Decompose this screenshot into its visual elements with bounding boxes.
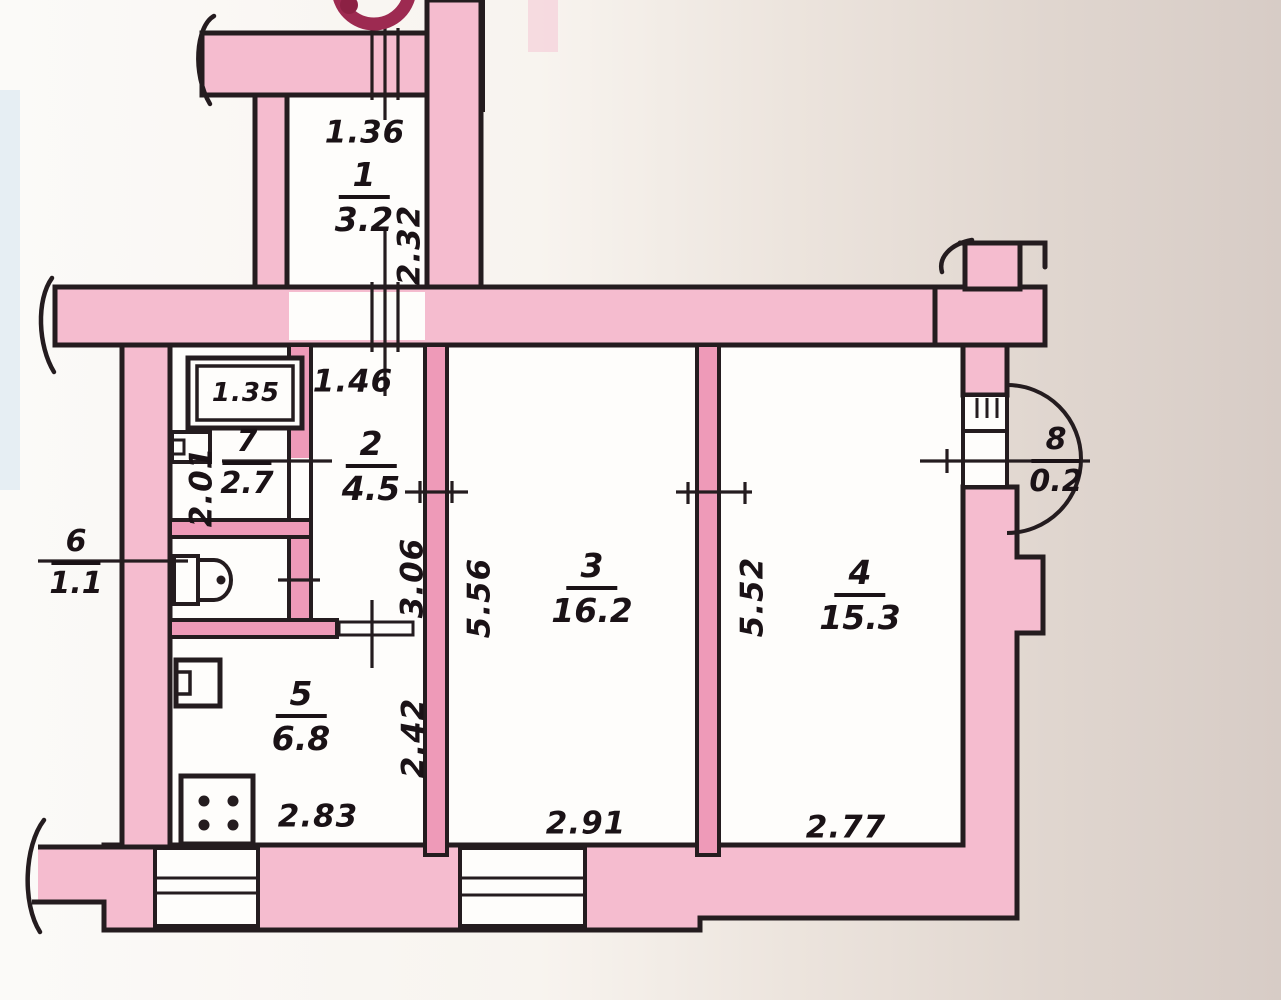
vent-window: [963, 395, 1007, 431]
dim-2-01: 2.01: [187, 447, 218, 528]
door-opening-bathroom: [291, 458, 309, 518]
room-2-number: 2: [346, 427, 397, 468]
room-5-label: 5 6.8: [272, 677, 330, 755]
room-7-number: 7: [223, 427, 272, 465]
room-8-label: 8 0.2: [1029, 425, 1082, 497]
room-7-area: 2.7: [220, 465, 273, 499]
wall-left-heel: [38, 847, 108, 902]
balcony-door-opening: [963, 431, 1007, 487]
kitchen-door-leaf: [339, 622, 413, 635]
room-1-label: 1 3.2: [335, 158, 393, 236]
room-1-number: 1: [339, 158, 390, 199]
room-8-area: 0.2: [1029, 463, 1082, 497]
pink-smudge: [528, 0, 558, 52]
toilet-icon: [174, 556, 231, 604]
door-opening-room1: [289, 292, 425, 340]
dim-2-32: 2.32: [395, 205, 426, 286]
room-6-number: 6: [52, 527, 101, 565]
dim-2-77: 2.77: [806, 813, 887, 844]
floor-plan-page: 1 3.2 2 4.5 3 16.2 4 15.3 5 6.8 6 1.1 7 …: [0, 0, 1281, 1000]
room-4-number: 4: [835, 556, 886, 597]
dim-3-06: 3.06: [398, 538, 429, 619]
room-5-area: 6.8: [272, 718, 330, 755]
dim-bathtub-1-35: 1.35: [212, 380, 280, 406]
dim-5-52: 5.52: [738, 557, 769, 638]
room-6-label: 6 1.1: [49, 527, 102, 599]
room-3-number: 3: [567, 549, 618, 590]
room-8-number: 8: [1032, 425, 1081, 463]
dim-5-56: 5.56: [465, 558, 496, 639]
room-4-area: 15.3: [819, 597, 900, 634]
dim-2-91: 2.91: [546, 809, 627, 840]
window-kitchen: [155, 848, 258, 926]
room-2-area: 4.5: [342, 468, 400, 505]
room-6-area: 1.1: [49, 565, 102, 599]
stove-icon: [181, 776, 253, 844]
room-2-label: 2 4.5: [342, 427, 400, 505]
room-7-label: 7 2.7: [220, 427, 273, 499]
window-room3: [460, 848, 585, 926]
dim-2-42: 2.42: [399, 698, 430, 779]
kitchen-sink-icon: [176, 660, 220, 706]
room-1-area: 3.2: [335, 199, 393, 236]
room-3-area: 16.2: [551, 590, 632, 627]
room-4-label: 4 15.3: [819, 556, 900, 634]
dim-1-46: 1.46: [313, 367, 394, 398]
room-3-label: 3 16.2: [551, 549, 632, 627]
dim-2-83: 2.83: [278, 802, 359, 833]
paper-blue-edge: [0, 90, 20, 490]
room-5-number: 5: [276, 677, 327, 718]
dim-1-36: 1.36: [325, 118, 406, 149]
